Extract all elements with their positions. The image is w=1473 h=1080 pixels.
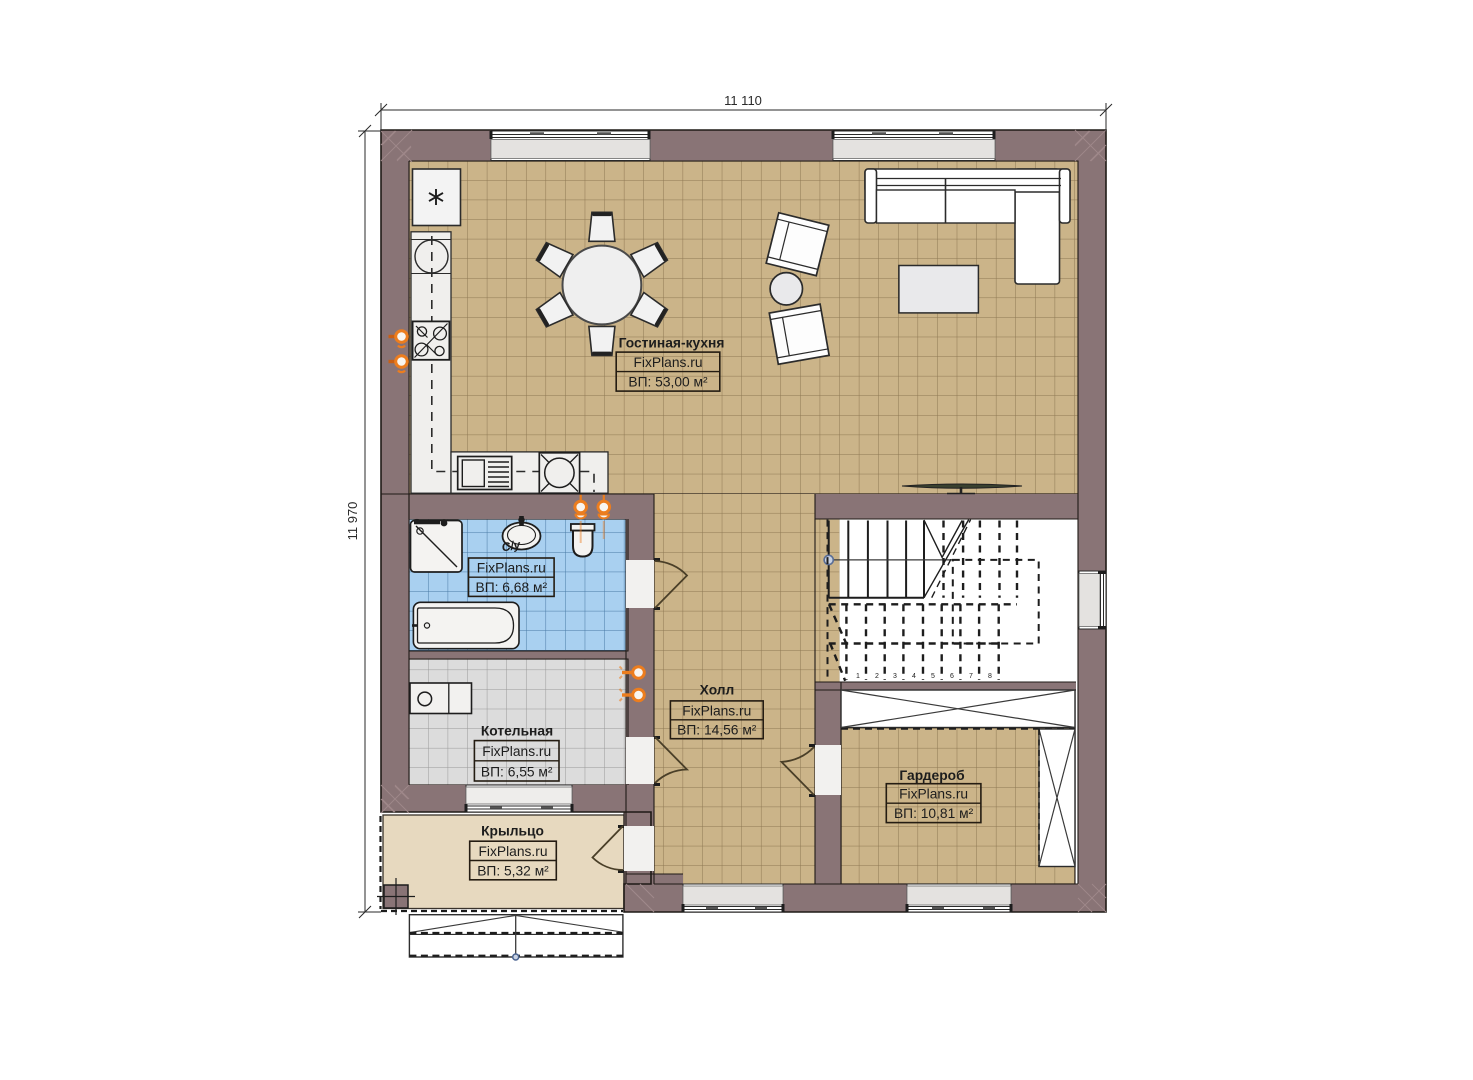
svg-text:ВП: 6,68 м²: ВП: 6,68 м²	[476, 580, 548, 595]
svg-text:Гардероб: Гардероб	[899, 768, 964, 783]
svg-text:Холл: Холл	[700, 683, 735, 698]
svg-text:ВП: 10,81 м²: ВП: 10,81 м²	[894, 806, 974, 821]
svg-text:FixPlans.ru: FixPlans.ru	[482, 744, 551, 759]
svg-text:ВП: 53,00 м²: ВП: 53,00 м²	[628, 374, 708, 389]
svg-text:8: 8	[988, 673, 992, 680]
svg-text:11 110: 11 110	[724, 93, 762, 108]
svg-text:FixPlans.ru: FixPlans.ru	[682, 703, 751, 718]
svg-text:6: 6	[950, 673, 954, 680]
svg-text:FixPlans.ru: FixPlans.ru	[633, 355, 702, 370]
svg-text:FixPlans.ru: FixPlans.ru	[478, 844, 547, 859]
svg-text:Крыльцо: Крыльцо	[481, 824, 544, 839]
svg-text:ВП: 6,55 м²: ВП: 6,55 м²	[481, 764, 553, 779]
svg-text:1: 1	[856, 673, 860, 680]
svg-text:ВП: 14,56 м²: ВП: 14,56 м²	[677, 722, 757, 737]
svg-text:3: 3	[893, 673, 897, 680]
svg-text:Котельная: Котельная	[481, 724, 553, 739]
svg-text:11 970: 11 970	[345, 502, 360, 541]
svg-text:ВП: 5,32 м²: ВП: 5,32 м²	[477, 863, 549, 878]
svg-text:5: 5	[931, 673, 935, 680]
svg-text:7: 7	[969, 673, 973, 680]
svg-text:2: 2	[875, 673, 879, 680]
svg-text:Гостиная-кухня: Гостиная-кухня	[619, 336, 725, 351]
svg-text:4: 4	[912, 673, 916, 680]
svg-text:FixPlans.ru: FixPlans.ru	[899, 787, 968, 802]
svg-text:FixPlans.ru: FixPlans.ru	[477, 561, 546, 576]
